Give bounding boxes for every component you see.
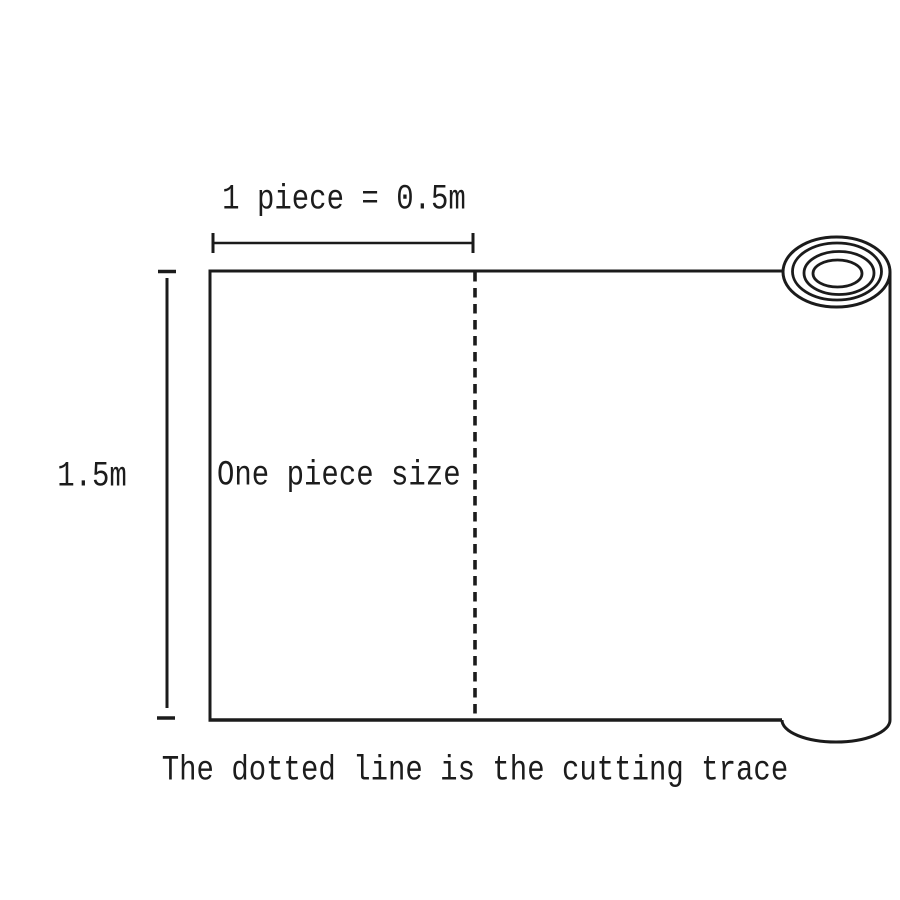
- roll-bottom-curve: [782, 720, 890, 742]
- roll-core-ellipse: [813, 260, 862, 287]
- cutting-trace-caption: The dotted line is the cutting trace: [75, 751, 875, 791]
- roll-cutting-diagram: 1 piece = 0.5m 1.5m One piece size The d…: [0, 0, 900, 900]
- piece-size-label: One piece size: [217, 456, 461, 496]
- width-dimension-label: 1 piece = 0.5m: [203, 180, 485, 220]
- height-dimension-label: 1.5m: [32, 457, 152, 497]
